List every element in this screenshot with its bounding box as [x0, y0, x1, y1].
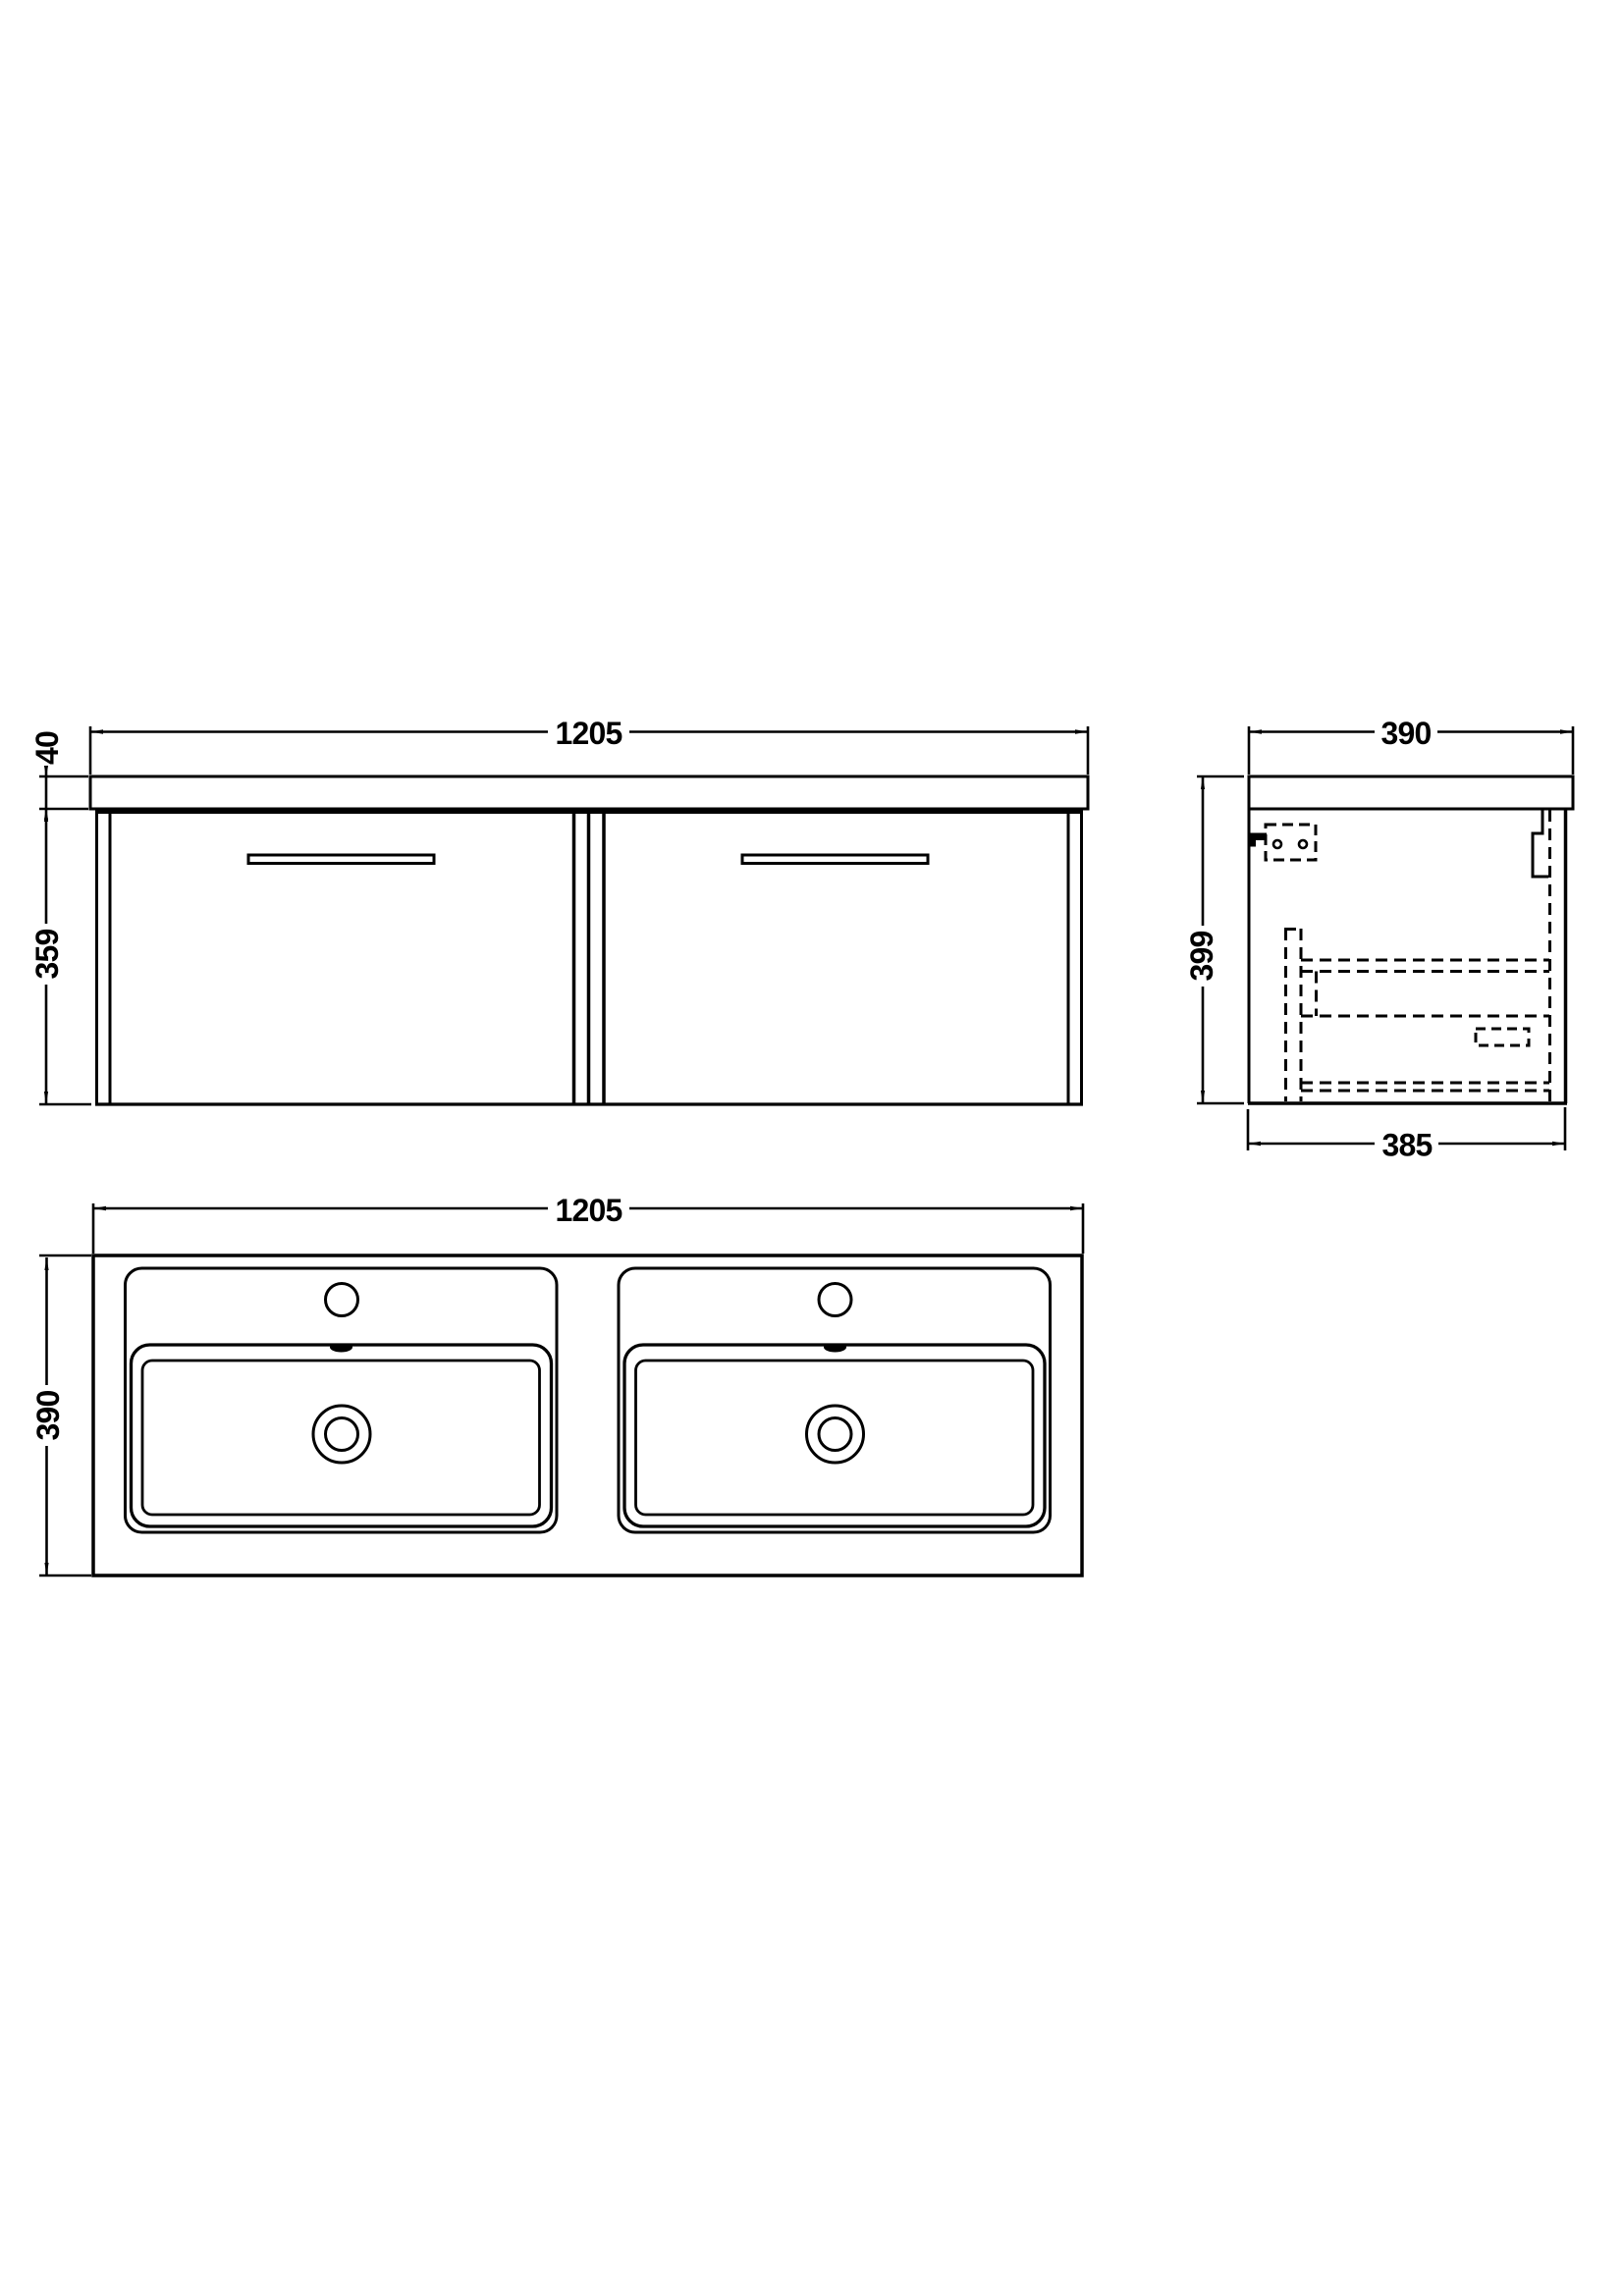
svg-text:385: 385 [1382, 1128, 1433, 1163]
svg-text:399: 399 [1184, 932, 1219, 982]
svg-text:1205: 1205 [556, 716, 622, 751]
svg-text:390: 390 [1381, 716, 1432, 751]
svg-text:390: 390 [30, 1391, 66, 1441]
svg-text:40: 40 [29, 731, 65, 765]
svg-text:1205: 1205 [556, 1193, 622, 1228]
svg-text:359: 359 [29, 930, 65, 980]
